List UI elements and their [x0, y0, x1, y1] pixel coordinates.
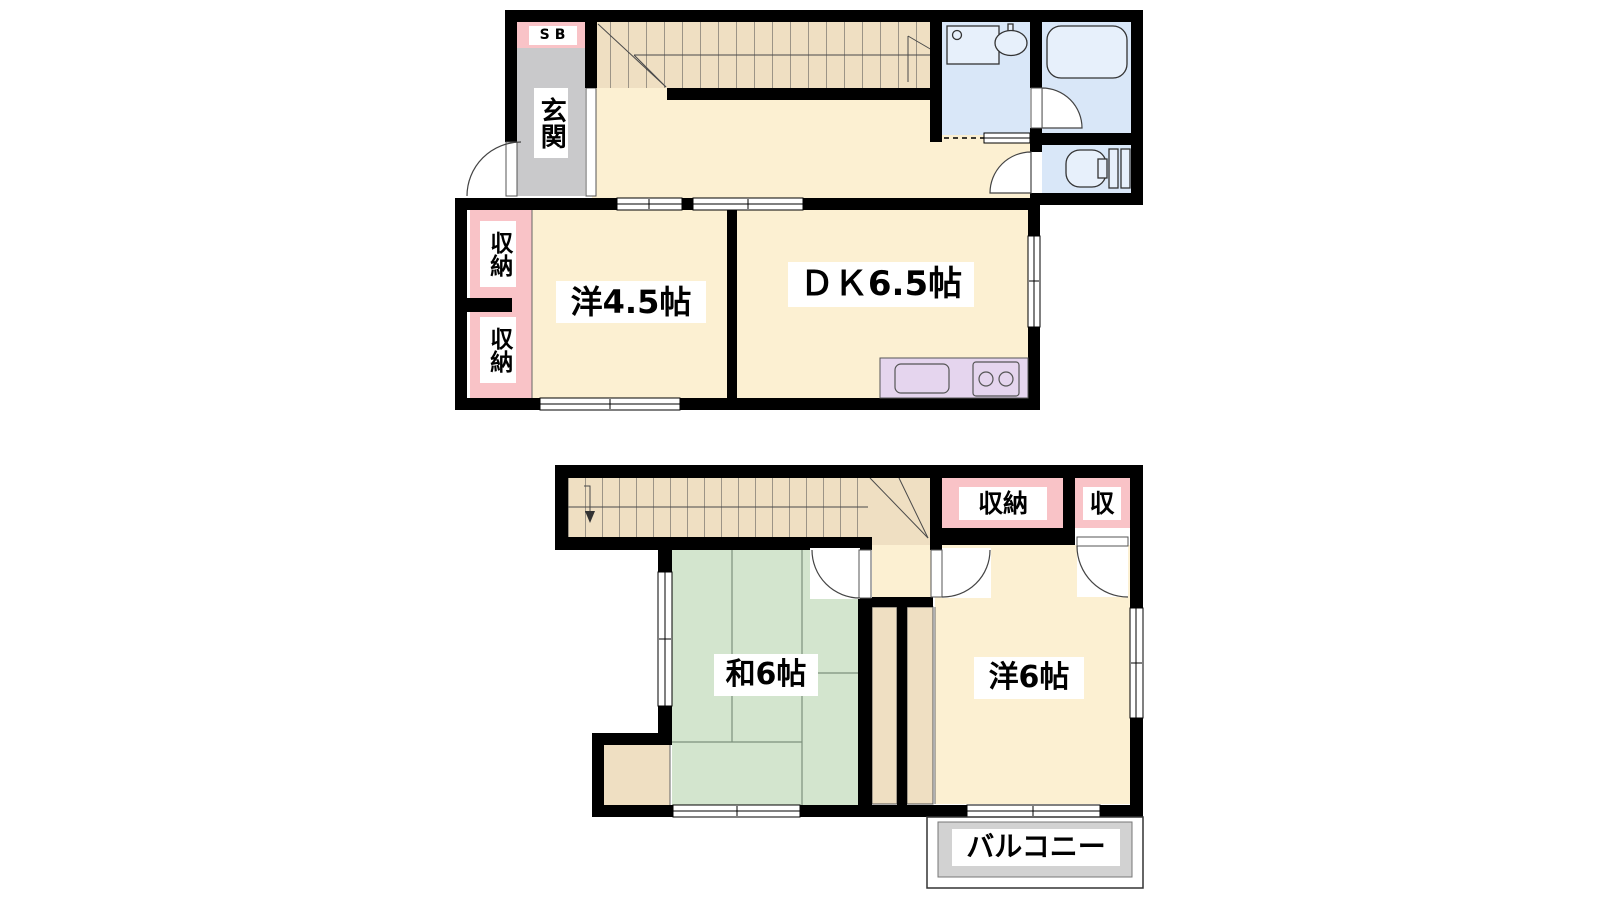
storage-upper-label: 収納 [480, 221, 516, 287]
toilet [1066, 149, 1130, 188]
japanese-room-label: 和6帖 [714, 654, 818, 696]
storage-2f-label: 収納 [959, 487, 1047, 520]
storage-small-2f-label: 収 [1083, 487, 1121, 520]
storage-lower-label: 収納 [480, 317, 516, 383]
kitchen-counter [880, 358, 1028, 398]
floorplan-drawing [0, 0, 1600, 900]
bathtub [1047, 26, 1127, 78]
western-room-4-5-label: 洋4.5帖 [556, 281, 706, 323]
dining-kitchen-label: ＤＫ6.5帖 [788, 262, 974, 307]
entrance-label: 玄関 [534, 88, 568, 158]
closet-door [1077, 537, 1128, 597]
western-room-6-label: 洋6帖 [974, 657, 1084, 699]
entrance-door [467, 142, 521, 196]
japanese-room-door [810, 548, 871, 599]
western-room-door [931, 548, 991, 598]
floor2-room-fills [568, 478, 1130, 805]
washing-machine-pan [947, 26, 999, 64]
balcony-label: バルコニー [952, 829, 1120, 866]
shoe-box-label: SB [529, 26, 577, 45]
entrance-step-edge [586, 88, 596, 196]
floor1 [455, 10, 1143, 410]
floorplan-canvas: SB 玄関 収納 収納 洋4.5帖 ＤＫ6.5帖 収納 収 和6帖 洋6帖 バル… [0, 0, 1600, 900]
